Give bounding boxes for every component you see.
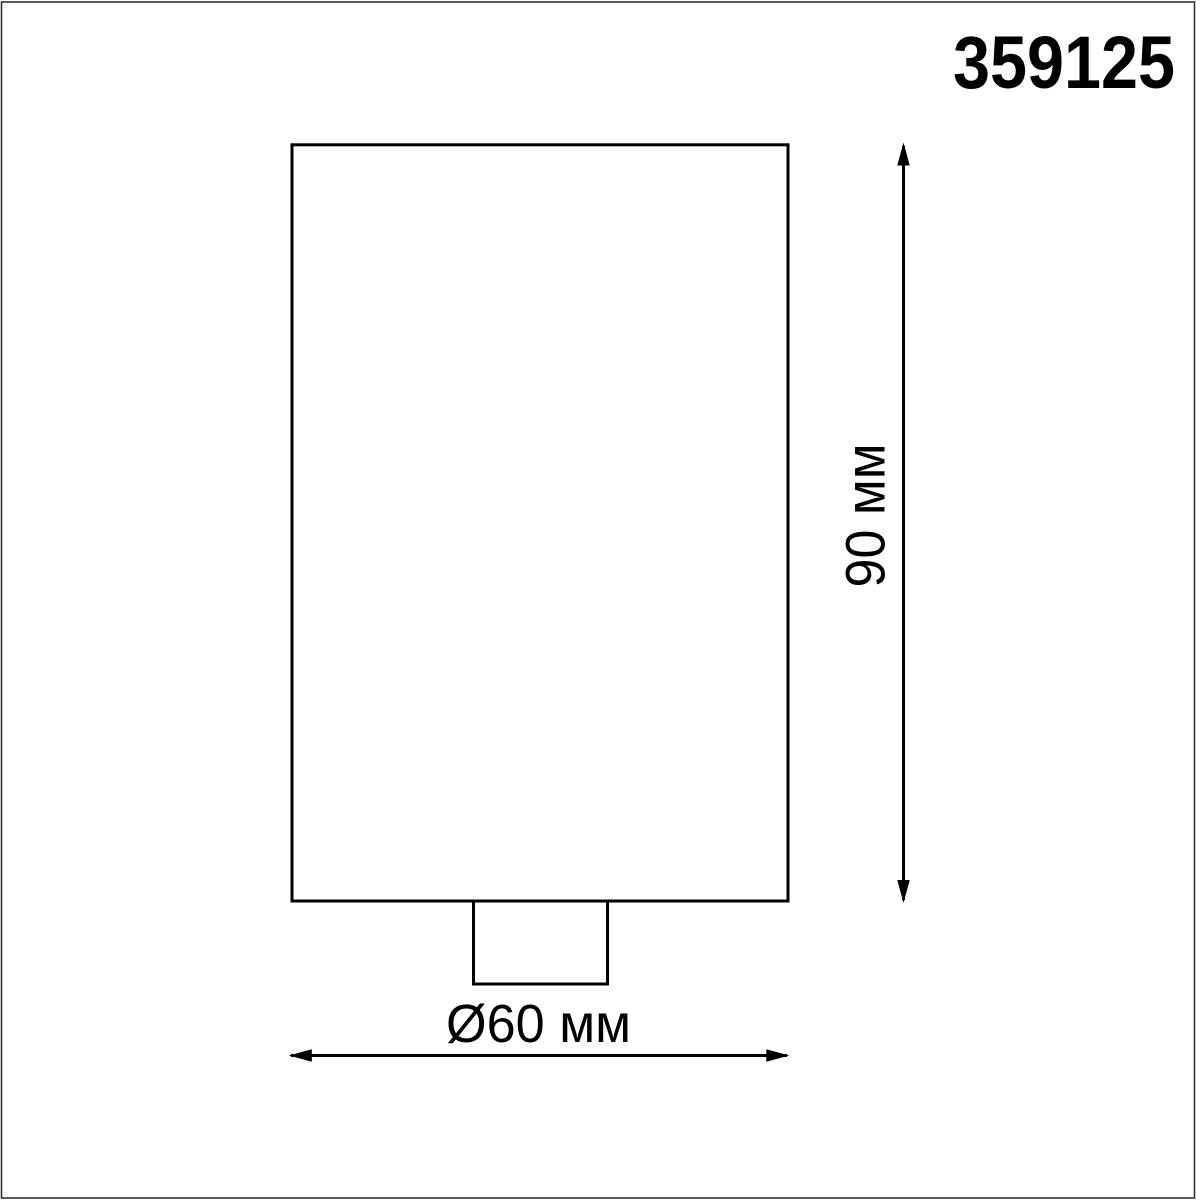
svg-text:90 мм: 90 мм	[834, 444, 897, 588]
svg-text:Ø60 мм: Ø60 мм	[446, 994, 631, 1054]
svg-text:359125: 359125	[953, 21, 1175, 104]
